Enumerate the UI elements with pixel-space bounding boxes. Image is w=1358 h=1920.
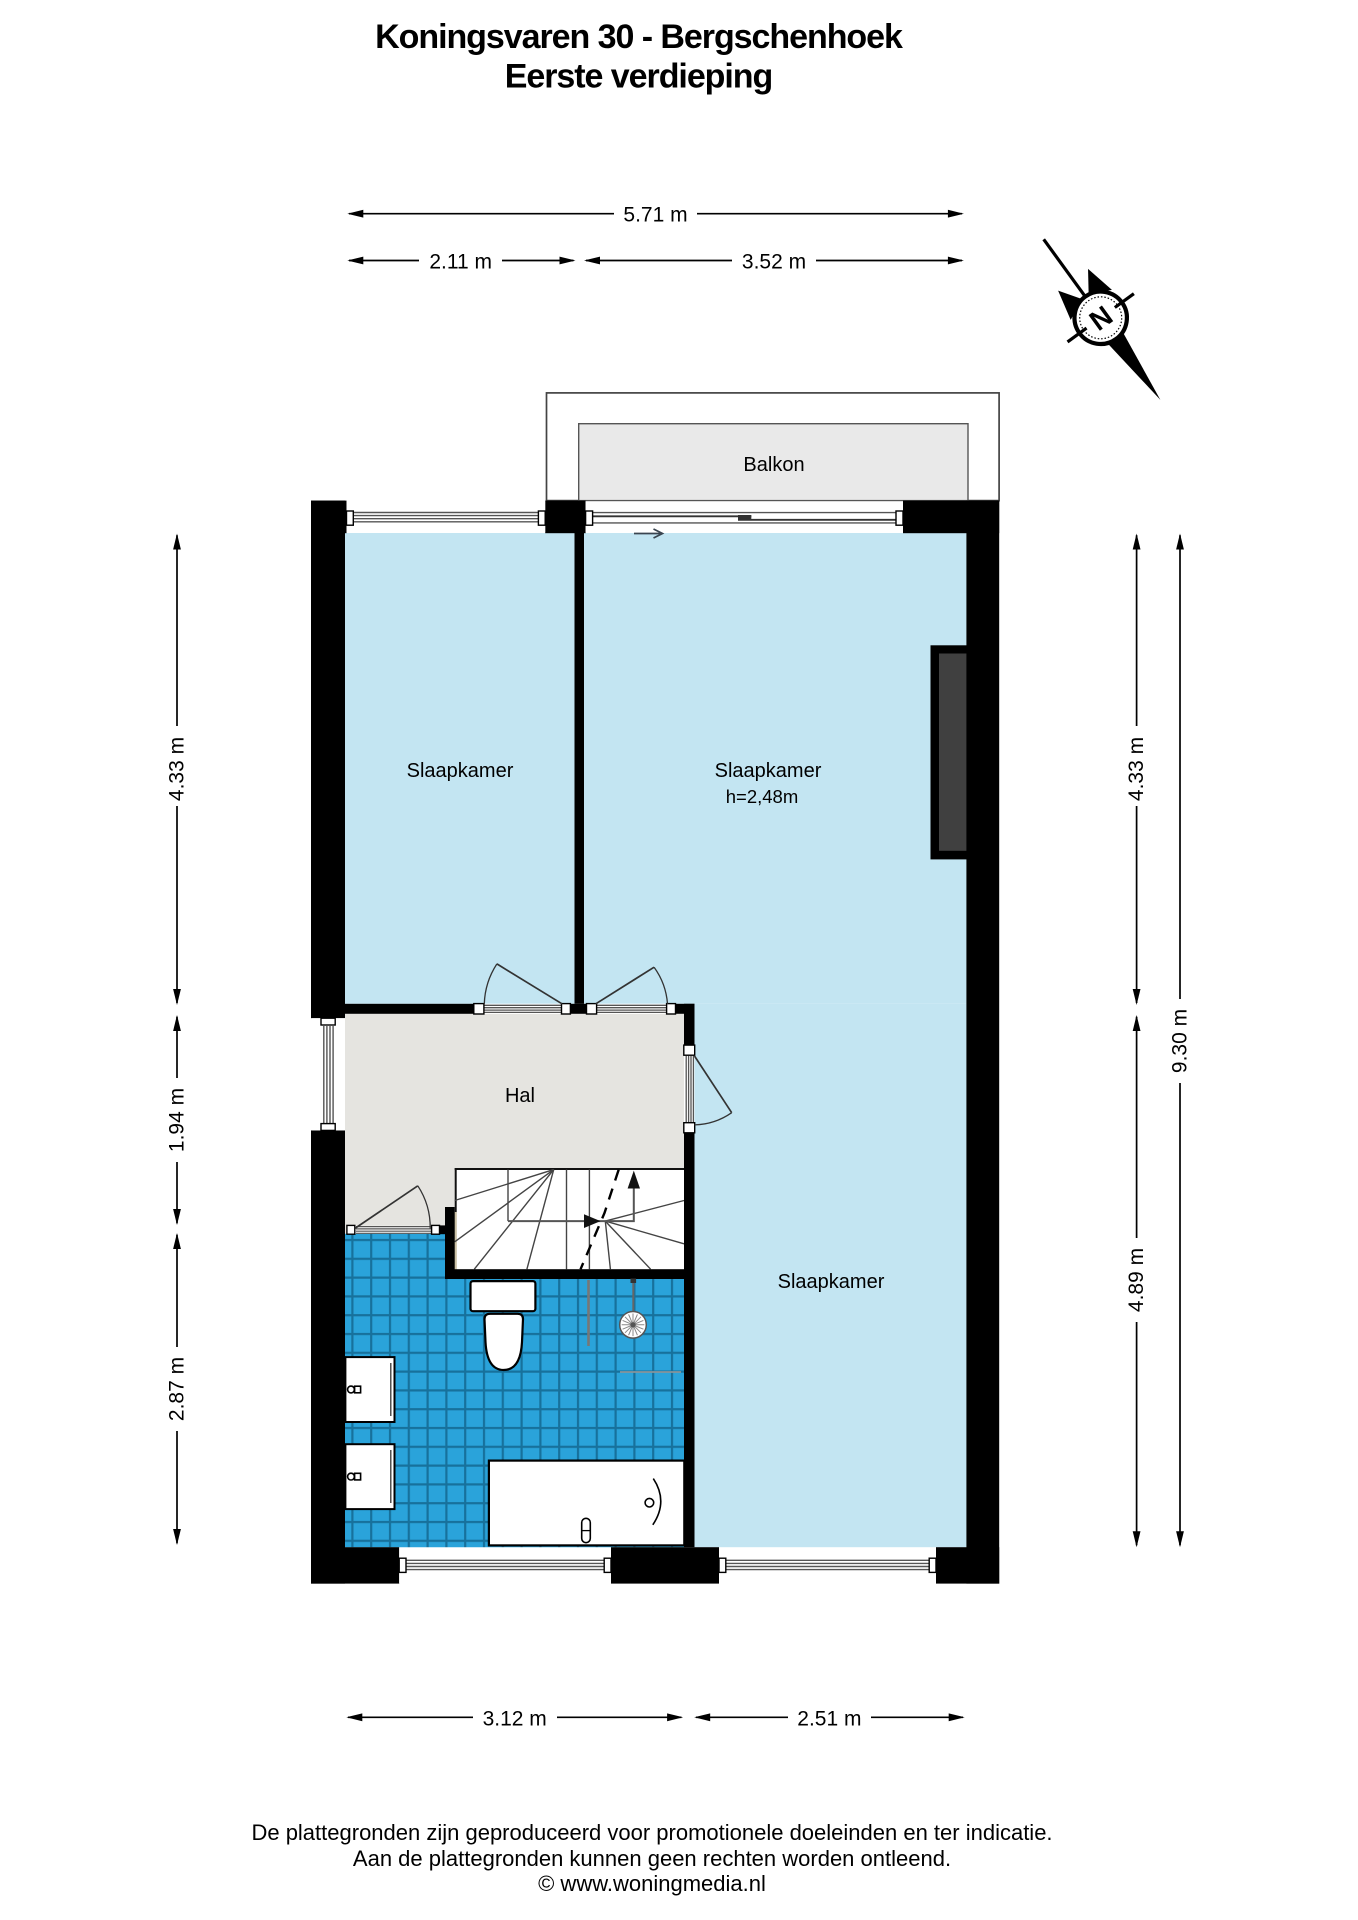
svg-text:Hal: Hal: [505, 1085, 535, 1107]
svg-text:De plattegronden zijn geproduc: De plattegronden zijn geproduceerd voor …: [251, 1820, 1052, 1845]
svg-text:2.87 m: 2.87 m: [166, 1357, 189, 1421]
svg-text:2.51 m: 2.51 m: [797, 1707, 861, 1730]
svg-text:Eerste verdieping: Eerste verdieping: [505, 58, 772, 96]
svg-text:Balkon: Balkon: [743, 454, 804, 476]
svg-text:3.52 m: 3.52 m: [742, 251, 806, 274]
svg-text:© www.woningmedia.nl: © www.woningmedia.nl: [538, 1871, 766, 1896]
svg-text:Slaapkamer: Slaapkamer: [715, 760, 822, 782]
svg-text:9.30 m: 9.30 m: [1169, 1009, 1192, 1073]
svg-text:Koningsvaren 30 - Bergschenhoe: Koningsvaren 30 - Bergschenhoek: [375, 18, 903, 56]
svg-text:4.89 m: 4.89 m: [1125, 1248, 1148, 1312]
svg-text:5.71 m: 5.71 m: [623, 204, 687, 227]
svg-text:Slaapkamer: Slaapkamer: [407, 760, 514, 782]
svg-text:2.11 m: 2.11 m: [429, 251, 492, 274]
svg-text:4.33 m: 4.33 m: [1125, 737, 1148, 801]
svg-text:4.33 m: 4.33 m: [166, 737, 189, 801]
svg-text:Aan de plattegronden kunnen ge: Aan de plattegronden kunnen geen rechten…: [353, 1846, 951, 1871]
svg-text:Slaapkamer: Slaapkamer: [778, 1271, 885, 1293]
svg-text:h=2,48m: h=2,48m: [726, 786, 799, 807]
svg-text:3.12 m: 3.12 m: [483, 1707, 547, 1730]
svg-text:1.94 m: 1.94 m: [166, 1088, 189, 1152]
